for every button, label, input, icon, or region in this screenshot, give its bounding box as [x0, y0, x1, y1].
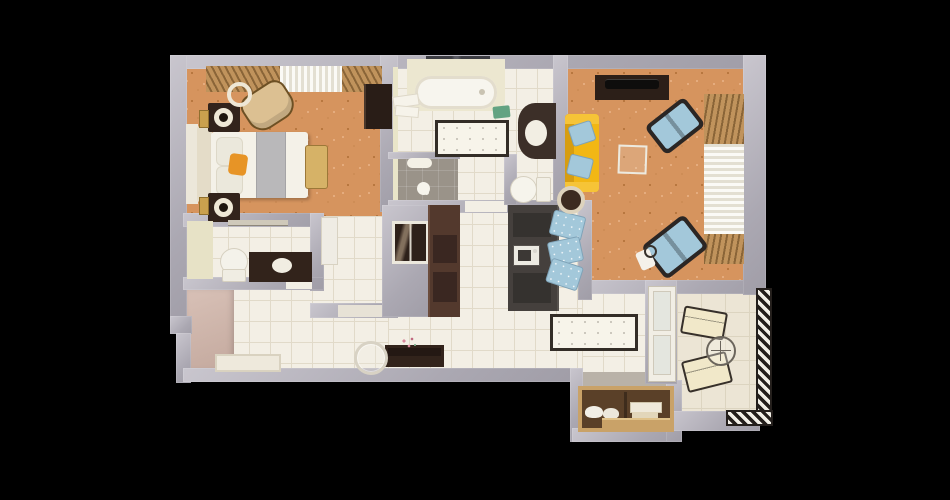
balcony-table-spoke-v — [720, 341, 721, 361]
floor-lamp — [227, 82, 252, 107]
balcony-door-glass-bottom — [653, 335, 671, 375]
doormat — [215, 354, 281, 372]
wc-wall-face — [187, 221, 213, 279]
wall-mirror — [392, 221, 429, 264]
floorplan-canvas — [0, 0, 950, 500]
bedroom-window-curtain — [280, 66, 342, 92]
bath-rug — [435, 120, 509, 157]
wall-sconce-top — [199, 110, 209, 128]
bed-runner — [256, 132, 286, 198]
bed-throw-pillow — [228, 153, 249, 176]
wall-balcony-door — [645, 280, 677, 384]
closet-pillow-1 — [585, 406, 603, 418]
towel-stack-2 — [395, 105, 420, 118]
island-panel-1 — [513, 213, 551, 237]
bathroom-doorway — [465, 201, 507, 212]
balcony-railing-corner — [726, 410, 773, 426]
soap-tray — [492, 105, 510, 119]
balcony-door-glass-top — [653, 291, 671, 331]
shower-handset — [417, 182, 430, 195]
shower-mat — [407, 158, 432, 168]
closet-shelf-front — [602, 418, 670, 431]
bathtub-drain — [479, 89, 485, 95]
closet-divider — [624, 392, 627, 418]
island-sink — [513, 245, 540, 266]
counter-appliance-1 — [433, 235, 457, 263]
wall-sconce-bottom — [199, 197, 209, 215]
bathtub — [415, 76, 497, 109]
balcony-table — [706, 336, 736, 366]
wall-bedroom-bathroom — [380, 55, 398, 212]
living-window-blind-bottom — [704, 234, 744, 264]
foot-bench — [305, 145, 328, 189]
hall-flowers — [398, 335, 420, 352]
tv-screen — [605, 79, 659, 89]
headphones — [644, 245, 657, 258]
balcony-table-spoke-h — [711, 350, 731, 351]
toilet-tank — [536, 177, 551, 202]
closet-wardrobe — [578, 386, 674, 432]
wc-toilet-tank — [222, 269, 246, 282]
bedroom-doorway-threshold — [338, 305, 382, 317]
apartment-floorplan — [0, 0, 950, 500]
bathroom-wall-face — [393, 67, 398, 212]
living-window-blind-top — [704, 94, 744, 144]
balcony-railing-right — [756, 288, 772, 425]
kitchen-rug — [550, 314, 638, 351]
round-side-rug — [557, 186, 585, 214]
wall-left — [170, 55, 187, 334]
tv-console — [595, 75, 669, 100]
wall-left-step — [170, 316, 192, 334]
island-sink-faucet — [533, 249, 537, 253]
island-sink-basin — [518, 250, 531, 261]
wc-basin — [272, 258, 292, 273]
coffee-table — [618, 145, 648, 175]
balcony-door-frame — [648, 286, 676, 382]
wc-towel-rail — [228, 220, 288, 226]
kitchen-counter — [428, 205, 460, 317]
hall-round-mirror — [354, 341, 388, 375]
wall-right — [743, 55, 766, 295]
nightstand-lamp-top — [214, 108, 233, 127]
toilet-bowl — [510, 176, 537, 203]
wc-door-panel — [321, 217, 338, 265]
counter-appliance-2 — [433, 272, 457, 302]
living-window-curtain — [704, 144, 744, 234]
bathroom-basin — [525, 120, 547, 146]
bed-headboard — [197, 126, 212, 202]
nightstand-lamp-bottom — [214, 198, 233, 217]
bedroom-wardrobe — [364, 84, 392, 129]
